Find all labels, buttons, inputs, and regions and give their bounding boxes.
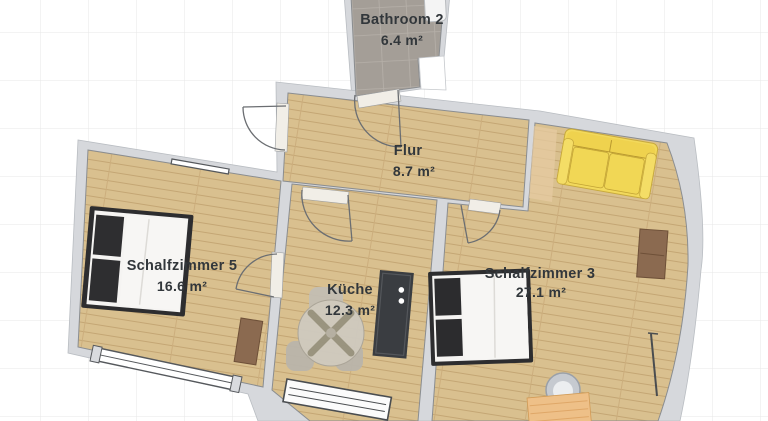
floor-plan-canvas[interactable]: Bathroom 2 6.4 m² Flur 8.7 m² Schalfzimm… (0, 0, 768, 421)
pillow (93, 215, 124, 257)
room-name: Schalfzimmer 3 (485, 266, 596, 282)
pillow (436, 319, 463, 357)
room-area: 12.3 m² (325, 302, 375, 318)
room-name: Küche (327, 282, 373, 298)
room-name: Bathroom 2 (360, 12, 444, 28)
pillow (89, 258, 121, 302)
bathroom-niche (419, 56, 446, 90)
room-area: 6.4 m² (381, 32, 423, 48)
pillow (434, 278, 461, 316)
room-name: Schalfzimmer 5 (127, 258, 238, 274)
floor-plan-viewport: Bathroom 2 6.4 m² Flur 8.7 m² Schalfzimm… (0, 0, 768, 421)
room-area: 16.6 m² (157, 278, 207, 294)
room-area: 8.7 m² (393, 163, 435, 179)
desk[interactable] (527, 393, 592, 421)
dresser[interactable] (637, 229, 668, 279)
room-name: Flur (394, 143, 423, 159)
entry-opening (275, 103, 289, 152)
room-area: 27.1 m² (516, 284, 566, 300)
schalfzimmer-5-opening (270, 252, 284, 298)
